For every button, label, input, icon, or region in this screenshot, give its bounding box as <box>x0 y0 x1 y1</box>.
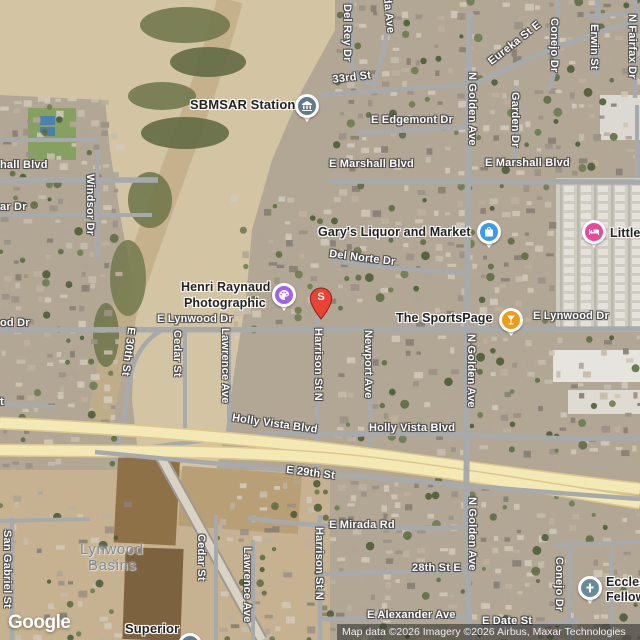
street-label: N Fairfax Dr <box>626 14 638 79</box>
street-label: hall Blvd <box>0 159 48 171</box>
martini-icon <box>502 311 520 329</box>
street-label: Garden Dr <box>509 92 521 148</box>
street-label: 28th St E <box>412 562 461 574</box>
palette-icon <box>275 286 293 304</box>
street-label: Cedar St <box>195 534 207 581</box>
map-canvas[interactable]: Del Rey Dreda Ave33rd StEureka St EConej… <box>0 0 640 640</box>
street-label: Erwin St <box>588 24 600 70</box>
street-label: od Dr <box>0 317 30 329</box>
street-label: N Golden Ave <box>465 334 477 408</box>
poi-label[interactable]: Fellowship <box>606 590 640 604</box>
photographic-marker[interactable] <box>272 283 296 307</box>
poi-label[interactable]: Photographic <box>184 296 266 310</box>
street-label: E Marshall Blvd <box>485 157 570 169</box>
church-marker[interactable] <box>578 576 602 600</box>
street-label: ar Dr <box>0 201 27 213</box>
bed-icon <box>585 223 603 241</box>
street-label: Lawrence Ave <box>219 328 231 404</box>
pin-letter: S <box>309 291 333 303</box>
park <box>28 108 76 160</box>
street-label: Harrison St N <box>312 328 324 401</box>
street-label: t <box>0 396 4 408</box>
street-label: N Golden Ave <box>466 497 478 571</box>
station-civic-marker[interactable] <box>295 94 319 118</box>
street-label: E Marshall Blvd <box>329 158 414 170</box>
street-label: Del Rey Dr <box>341 4 353 62</box>
attribution-bar[interactable]: Map data ©2026 Imagery ©2026 Airbus, Max… <box>337 624 640 640</box>
street-label: E Mirada Rd <box>329 519 395 531</box>
street-label: Holly Vista Blvd <box>369 422 455 434</box>
poi-label[interactable]: Little <box>610 226 640 240</box>
street-label: Newport Ave <box>362 330 374 399</box>
area-label: Basins <box>88 557 137 574</box>
street-label: E Lynwood Dr <box>533 310 609 322</box>
poi-label[interactable]: Gary's Liquor and Market <box>318 225 471 239</box>
hotel-marker[interactable] <box>582 220 606 244</box>
search-result-pin[interactable]: S <box>309 287 333 320</box>
liquor-store-marker[interactable] <box>477 220 501 244</box>
street-label: Cedar St <box>171 330 183 377</box>
cross-icon <box>581 579 599 597</box>
street-label: N Golden Ave <box>466 72 478 146</box>
street-label: Lawrence Ave <box>241 547 253 623</box>
attribution-text: Map data ©2026 Imagery ©2026 Airbus, Max… <box>337 626 626 638</box>
sports-bar-marker[interactable] <box>499 308 523 332</box>
poi-label[interactable]: Superior <box>125 621 179 636</box>
google-logo[interactable]: Google <box>8 612 70 634</box>
street-label: San Gabriel St <box>1 530 13 608</box>
poi-label[interactable]: Ecclesia <box>606 575 640 589</box>
poi-label[interactable]: SBMSAR Station <box>190 97 295 112</box>
street-label: E Alexander Ave <box>367 609 456 621</box>
street-label: Harrison St N <box>313 527 325 600</box>
street-label: Conejo Dr <box>548 18 560 72</box>
street-label: Conejo Dr <box>553 557 565 611</box>
street-label: E Lynwood Dr <box>157 313 233 325</box>
street-label: Windsor Dr <box>84 174 96 235</box>
poi-label[interactable]: Henri Raynaud <box>181 280 271 294</box>
superior-marker[interactable] <box>178 633 202 640</box>
museum-icon <box>298 97 316 115</box>
shopping-bag-icon <box>480 223 498 241</box>
street-label: E Edgemont Dr <box>371 114 453 126</box>
area-label: Lynwood <box>80 541 144 558</box>
poi-label[interactable]: The SportsPage <box>396 311 493 325</box>
